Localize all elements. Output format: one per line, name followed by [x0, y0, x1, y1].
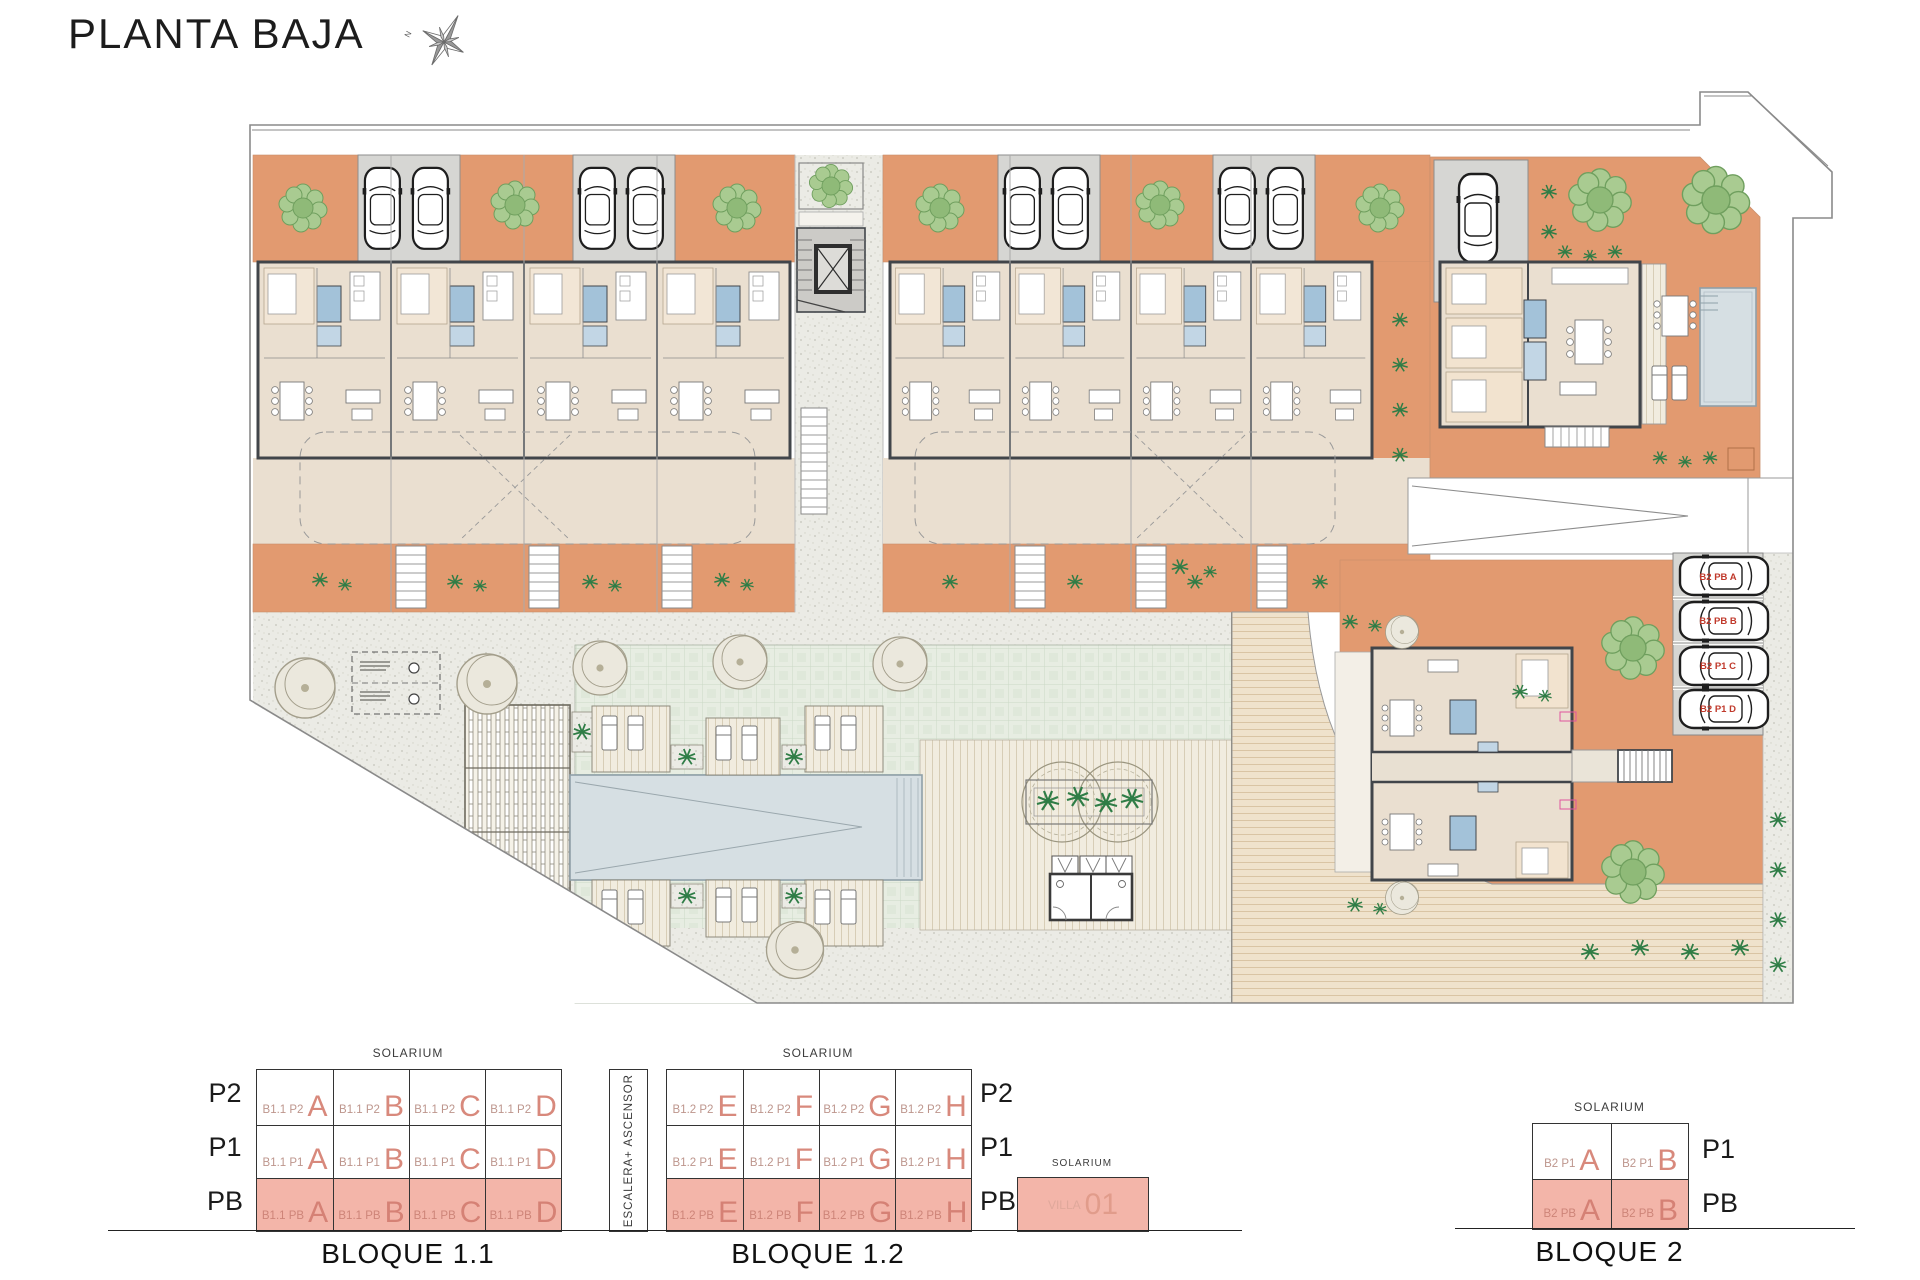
unit-cell: B1.2 P1E [667, 1125, 743, 1178]
unit-letter: C [460, 1200, 482, 1226]
stair-elevator-core [795, 155, 883, 612]
unit-letter: E [717, 1094, 737, 1120]
unit-letter: F [795, 1094, 813, 1120]
legend-baseline-right [1455, 1228, 1855, 1229]
unit-letter: A [307, 1147, 327, 1173]
unit-letter: B [1658, 1198, 1678, 1224]
parking-label: B2 P1 C [1700, 661, 1736, 672]
unit-cell: B1.1 PBB [333, 1178, 409, 1231]
solarium-label-b12: SOLARIUM [666, 1046, 970, 1060]
solarium-label-villa: SOLARIUM [1017, 1158, 1147, 1169]
unit-prefix: B1.2 P2 [750, 1104, 791, 1116]
garden-stair-flight [801, 408, 827, 514]
floor-label-b11-p2: P2 [197, 1078, 253, 1109]
unit-prefix: B1.2 P2 [900, 1104, 941, 1116]
unit-cell: B1.2 P2F [743, 1070, 819, 1125]
solarium-label-b11: SOLARIUM [256, 1046, 560, 1060]
unit-letter: B [1657, 1148, 1677, 1174]
unit-letter: B [384, 1094, 404, 1120]
unit-cell: B1.1 P1A [257, 1125, 333, 1178]
unit-prefix: B1.2 P1 [823, 1157, 864, 1169]
unit-cell: B1.1 P2A [257, 1070, 333, 1125]
parking-label: B2 PB B [1699, 616, 1737, 627]
unit-cell: B1.2 P2H [895, 1070, 971, 1125]
unit-prefix: B1.1 P2 [339, 1104, 380, 1116]
unit-cell: B1.2 P2E [667, 1070, 743, 1125]
floor-label-b12-p2: P2 [980, 1078, 1013, 1109]
unit-letter: E [717, 1147, 737, 1173]
unit-prefix: B1.1 P1 [339, 1157, 380, 1169]
page-title: PLANTA BAJA [68, 10, 365, 58]
unit-letter: G [868, 1094, 891, 1120]
escalera-ascensor-box: ESCALERA+ ASCENSOR [609, 1069, 648, 1232]
bloque-2-building [1372, 648, 1576, 880]
unit-cell: B1.1 PBA [257, 1178, 333, 1231]
unit-letter: D [536, 1200, 558, 1226]
villa-pool [1700, 288, 1756, 406]
solarium-label-b2: SOLARIUM [1532, 1100, 1687, 1114]
unit-cell: B1.2 P1H [895, 1125, 971, 1178]
unit-cell: B1.1 P2D [485, 1070, 561, 1125]
villa-number: 01 [1085, 1192, 1118, 1218]
unit-letter: H [945, 1147, 967, 1173]
elevator-shaft [797, 228, 865, 312]
compass-north-label: N [403, 29, 414, 39]
unit-prefix: B1.2 P1 [750, 1157, 791, 1169]
block-name-b12: BLOQUE 1.2 [668, 1238, 968, 1270]
floor-label-b11-pb: PB [197, 1186, 253, 1217]
unit-letter: G [869, 1200, 892, 1226]
unit-letter: A [308, 1200, 328, 1226]
unit-cell: B1.1 P1C [409, 1125, 485, 1178]
unit-prefix: B2 P1 [1622, 1158, 1653, 1170]
unit-cell: B1.1 P2C [409, 1070, 485, 1125]
bloque-12-zone [883, 155, 1430, 612]
unit-cell: B1.1 PBC [409, 1178, 485, 1231]
unit-cell: B1.2 P1G [819, 1125, 895, 1178]
unit-cell: B1.2 PBG [819, 1178, 895, 1231]
unit-prefix: B1.1 P2 [490, 1104, 531, 1116]
unit-letter: C [459, 1147, 481, 1173]
unit-letter: G [868, 1147, 891, 1173]
unit-cell: B1.2 PBF [743, 1178, 819, 1231]
unit-prefix: B1.1 P1 [490, 1157, 531, 1169]
floor-label-b12-pb: PB [980, 1186, 1016, 1217]
unit-cell: B2 P1B [1611, 1124, 1689, 1179]
unit-cell: B2 P1A [1533, 1124, 1611, 1179]
unit-prefix: B1.2 PB [900, 1210, 942, 1222]
unit-cell: B1.1 P2B [333, 1070, 409, 1125]
unit-prefix: B1.2 P2 [673, 1104, 714, 1116]
unit-letter: C [459, 1094, 481, 1120]
unit-cell: B1.2 PBE [667, 1178, 743, 1231]
legend-table-b2: B2 P1A B2 P1B B2 PBA B2 PBB [1532, 1123, 1689, 1230]
floor-label-b2-p1: P1 [1702, 1134, 1735, 1165]
unit-prefix: B1.1 P1 [414, 1157, 455, 1169]
unit-prefix: B1.1 PB [490, 1210, 532, 1222]
pool-wc-block [1050, 856, 1132, 920]
unit-prefix: B1.1 P1 [263, 1157, 304, 1169]
floor-label-b2-pb: PB [1702, 1188, 1738, 1219]
unit-prefix: B1.1 PB [262, 1210, 304, 1222]
bloque-2-parking: B2 PB A B2 PB B B2 P1 C B2 P1 D [1673, 553, 1768, 735]
unit-cell: B1.1 P1D [485, 1125, 561, 1178]
unit-prefix: B1.2 PB [672, 1210, 714, 1222]
legend-baseline-left [108, 1230, 1242, 1231]
unit-letter: B [384, 1147, 404, 1173]
unit-prefix: B2 P1 [1544, 1158, 1575, 1170]
escalera-ascensor-label: ESCALERA+ ASCENSOR [623, 1074, 635, 1227]
access-road [1408, 478, 1793, 554]
block-name-b11: BLOQUE 1.1 [258, 1238, 558, 1270]
unit-prefix: B2 PB [1543, 1208, 1576, 1220]
unit-letter: A [307, 1094, 327, 1120]
bloque-2-stairwell [1572, 750, 1672, 782]
villa-prefix: VILLA [1048, 1198, 1081, 1212]
unit-letter: F [795, 1147, 813, 1173]
unit-cell: B1.2 P1F [743, 1125, 819, 1178]
unit-letter: A [1579, 1148, 1599, 1174]
villa-zone [1430, 157, 1760, 478]
floor-label-b11-p1: P1 [197, 1132, 253, 1163]
villa-cell: VILLA 01 [1017, 1177, 1149, 1232]
floorplan-sheet: B2 PB A B2 PB B B2 P1 C B2 P1 D PLANTA B… [0, 0, 1920, 1280]
block-name-b2: BLOQUE 2 [1532, 1236, 1687, 1268]
bloque-11-zone [253, 155, 795, 612]
unit-cell: B1.2 PBH [895, 1178, 971, 1231]
floor-label-b12-p1: P1 [980, 1132, 1013, 1163]
unit-letter: D [535, 1094, 557, 1120]
unit-letter: H [945, 1094, 967, 1120]
unit-letter: A [1580, 1198, 1600, 1224]
unit-letter: D [535, 1147, 557, 1173]
unit-prefix: B1.1 P2 [414, 1104, 455, 1116]
unit-prefix: B1.1 P2 [263, 1104, 304, 1116]
unit-cell: B1.1 PBD [485, 1178, 561, 1231]
unit-prefix: B2 PB [1621, 1208, 1654, 1220]
swimming-pool [570, 775, 922, 880]
unit-prefix: B1.2 PB [823, 1210, 865, 1222]
legend-table-b11: B1.1 P2A B1.1 P2B B1.1 P2C B1.1 P2D B1.1… [256, 1069, 562, 1232]
unit-prefix: B1.2 P1 [673, 1157, 714, 1169]
unit-cell: B2 PBB [1611, 1179, 1689, 1229]
unit-prefix: B1.2 P2 [823, 1104, 864, 1116]
unit-prefix: B1.1 PB [414, 1210, 456, 1222]
unit-letter: E [718, 1200, 738, 1226]
unit-cell: B1.1 P1B [333, 1125, 409, 1178]
unit-cell: B1.2 P2G [819, 1070, 895, 1125]
unit-prefix: B1.2 PB [749, 1210, 791, 1222]
villa-building [1440, 262, 1666, 447]
parking-label: B2 PB A [1699, 572, 1736, 583]
unit-letter: B [385, 1200, 405, 1226]
parking-label: B2 P1 D [1700, 704, 1736, 715]
unit-letter: F [795, 1200, 813, 1226]
compass-north-icon: N [400, 6, 480, 76]
legend-table-b12: B1.2 P2E B1.2 P2F B1.2 P2G B1.2 P2H B1.2… [666, 1069, 972, 1232]
unit-cell: B2 PBA [1533, 1179, 1611, 1229]
unit-prefix: B1.2 P1 [900, 1157, 941, 1169]
villa-entry-stairs [1545, 427, 1609, 447]
unit-letter: H [946, 1200, 968, 1226]
unit-prefix: B1.1 PB [338, 1210, 380, 1222]
